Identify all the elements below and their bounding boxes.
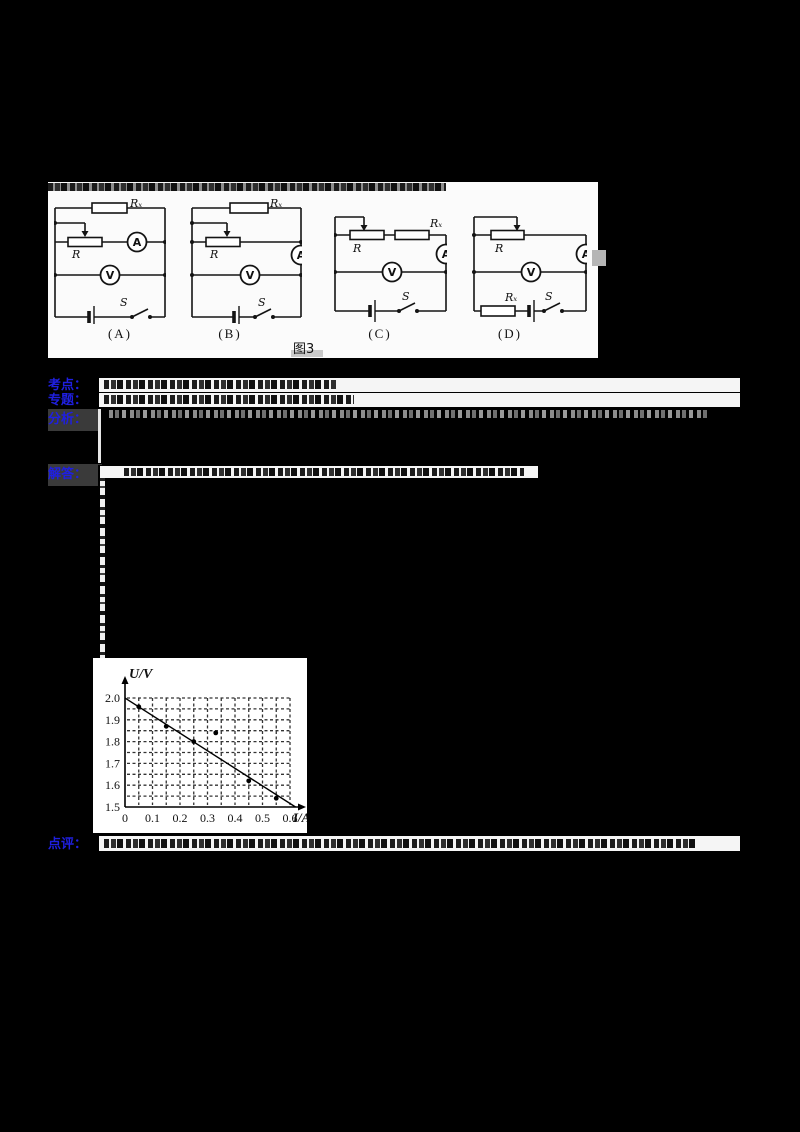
zhuanti-text-strip (99, 393, 740, 407)
svg-text:A: A (582, 248, 587, 261)
svg-text:1.5: 1.5 (105, 800, 120, 814)
rheostat-r (350, 231, 384, 240)
r-label: R (352, 242, 361, 255)
uv-ia-graph: 2.01.91.81.71.61.500.10.20.30.40.50.6U/V… (93, 658, 307, 833)
rx-label: Rₓ (504, 291, 517, 304)
circuit-D-diagram: R A V Rₓ S (472, 214, 587, 326)
resistor-rx (395, 231, 429, 240)
illegible-text (104, 839, 696, 848)
illegible-text (124, 468, 524, 476)
kaodian-text-strip (99, 378, 740, 392)
circuit-B-caption: (B) (208, 326, 252, 342)
rx-label: Rₓ (429, 217, 442, 230)
svg-text:I/A: I/A (292, 810, 307, 825)
svg-text:0.5: 0.5 (255, 811, 270, 825)
section-label-dianping: 点评： (48, 837, 87, 851)
circuit-B-diagram: Rₓ R A V S (190, 198, 302, 324)
switch-label: S (402, 290, 410, 303)
section-label-zhuanti: 专题： (48, 393, 87, 407)
illegible-text (104, 380, 336, 389)
switch-symbol (255, 309, 271, 317)
svg-text:0: 0 (122, 811, 128, 825)
svg-text:0.1: 0.1 (145, 811, 160, 825)
wiper-arrow-icon (82, 231, 89, 237)
fenxi-content-box (98, 409, 743, 463)
svg-text:V: V (527, 266, 536, 279)
circuit-A-diagram: Rₓ R A V S (54, 198, 166, 324)
rheostat-r (491, 231, 524, 240)
resistor-rx (92, 203, 127, 213)
svg-text:V: V (388, 266, 397, 279)
scrollbar-artifact (592, 250, 606, 266)
svg-text:A: A (133, 236, 142, 249)
svg-text:1.6: 1.6 (105, 778, 120, 792)
rheostat-r (68, 238, 102, 247)
svg-text:2.0: 2.0 (105, 691, 120, 705)
svg-text:A: A (297, 249, 302, 262)
svg-text:0.2: 0.2 (173, 811, 188, 825)
illegible-text (109, 410, 709, 418)
rx-label: Rₓ (129, 198, 142, 210)
jieda-first-line (100, 466, 538, 478)
svg-text:V: V (106, 269, 115, 282)
circuit-C-diagram: R Rₓ A V S (334, 214, 447, 326)
svg-text:U/V: U/V (129, 667, 154, 682)
wiper-arrow-icon (224, 231, 231, 237)
section-label-kaodian: 考点： (48, 378, 87, 392)
r-label: R (209, 248, 218, 261)
svg-text:A: A (442, 248, 447, 261)
clipped-text-column (100, 478, 105, 674)
circuit-figure-panel: Rₓ R A V S Rₓ (48, 182, 598, 358)
r-label: R (71, 248, 80, 261)
section-label-jieda: 解答： (48, 467, 87, 481)
document-page: Rₓ R A V S Rₓ (0, 0, 800, 1132)
switch-label: S (545, 290, 553, 303)
rheostat-r (206, 238, 240, 247)
illegible-text (104, 395, 354, 404)
svg-text:0.3: 0.3 (200, 811, 215, 825)
dianping-text-strip (99, 836, 740, 851)
uv-ia-chart-svg: 2.01.91.81.71.61.500.10.20.30.40.50.6U/V… (93, 658, 307, 833)
resistor-rx (481, 306, 515, 316)
svg-text:1.7: 1.7 (105, 756, 120, 770)
illegible-caption-strip (48, 183, 446, 191)
jieda-content-box: 2.01.91.81.71.61.500.10.20.30.40.50.6U/V… (98, 465, 740, 835)
svg-text:1.9: 1.9 (105, 713, 120, 727)
rx-label: Rₓ (269, 198, 282, 210)
switch-symbol (544, 303, 560, 311)
circuit-A-caption: (A) (98, 326, 142, 342)
switch-symbol (132, 309, 148, 317)
resistor-rx (230, 203, 268, 213)
switch-label: S (120, 296, 128, 309)
svg-text:1.8: 1.8 (105, 735, 120, 749)
section-label-fenxi: 分析： (48, 412, 87, 426)
figure-caption: 图3 (293, 338, 314, 357)
svg-text:V: V (246, 269, 255, 282)
circuit-D-caption: (D) (488, 326, 532, 342)
r-label: R (494, 242, 503, 255)
circuit-C-caption: (C) (358, 326, 402, 342)
svg-text:0.4: 0.4 (228, 811, 243, 825)
switch-symbol (399, 303, 415, 311)
switch-label: S (258, 296, 266, 309)
